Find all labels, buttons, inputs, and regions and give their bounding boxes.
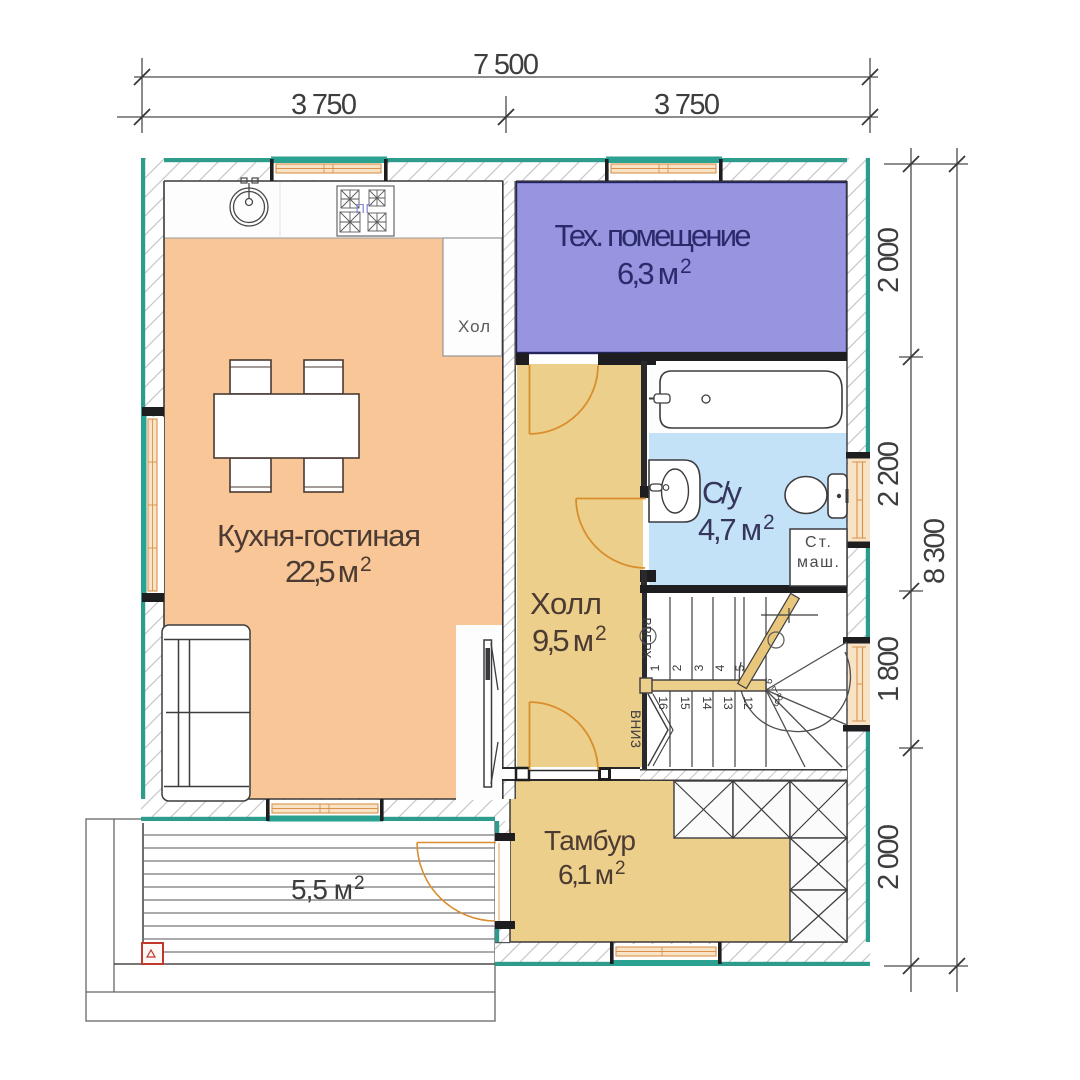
svg-text:3 750: 3 750	[291, 89, 357, 121]
svg-text:6,1 м: 6,1 м	[558, 859, 614, 890]
svg-text:14: 14	[700, 696, 714, 710]
svg-text:ВВЕРХ: ВВЕРХ	[639, 618, 653, 660]
svg-text:4: 4	[713, 664, 727, 671]
svg-text:16: 16	[656, 696, 670, 710]
svg-text:2: 2	[670, 664, 684, 671]
svg-text:2 000: 2 000	[873, 824, 905, 890]
svg-text:Тамбур: Тамбур	[544, 825, 636, 856]
svg-text:6,3 м: 6,3 м	[617, 256, 679, 291]
svg-text:2: 2	[360, 553, 372, 576]
svg-text:2: 2	[595, 622, 607, 645]
svg-text:12: 12	[741, 696, 755, 710]
svg-text:5,5 м: 5,5 м	[291, 874, 353, 905]
svg-text:9,5 м: 9,5 м	[532, 623, 594, 658]
svg-text:1 800: 1 800	[873, 636, 905, 702]
svg-text:2: 2	[763, 511, 775, 534]
svg-text:2 000: 2 000	[873, 227, 905, 293]
svg-text:15: 15	[678, 696, 692, 710]
svg-text:ПГ: ПГ	[356, 201, 373, 216]
svg-text:2 200: 2 200	[873, 441, 905, 507]
svg-text:Хол: Хол	[458, 317, 490, 336]
svg-text:Ст.: Ст.	[805, 534, 831, 551]
svg-text:5: 5	[733, 664, 747, 671]
svg-text:13: 13	[721, 696, 735, 710]
svg-text:3 750: 3 750	[654, 89, 720, 121]
svg-text:2: 2	[354, 873, 365, 894]
svg-text:2: 2	[680, 255, 692, 278]
svg-text:3: 3	[692, 664, 706, 671]
svg-text:7 500: 7 500	[473, 49, 539, 81]
svg-text:ВНИЗ: ВНИЗ	[628, 710, 643, 748]
svg-text:8 300: 8 300	[919, 518, 951, 584]
svg-text:2: 2	[615, 858, 626, 879]
svg-text:Холл: Холл	[530, 586, 602, 621]
svg-text:22,5 м: 22,5 м	[285, 554, 359, 589]
svg-text:маш.: маш.	[797, 554, 839, 571]
svg-text:Кухня-гостиная: Кухня-гостиная	[217, 518, 421, 553]
svg-text:Тех. помещение: Тех. помещение	[555, 218, 752, 253]
svg-text:С/у: С/у	[702, 475, 743, 510]
svg-text:1: 1	[648, 664, 662, 671]
svg-text:4,7 м: 4,7 м	[698, 512, 762, 547]
